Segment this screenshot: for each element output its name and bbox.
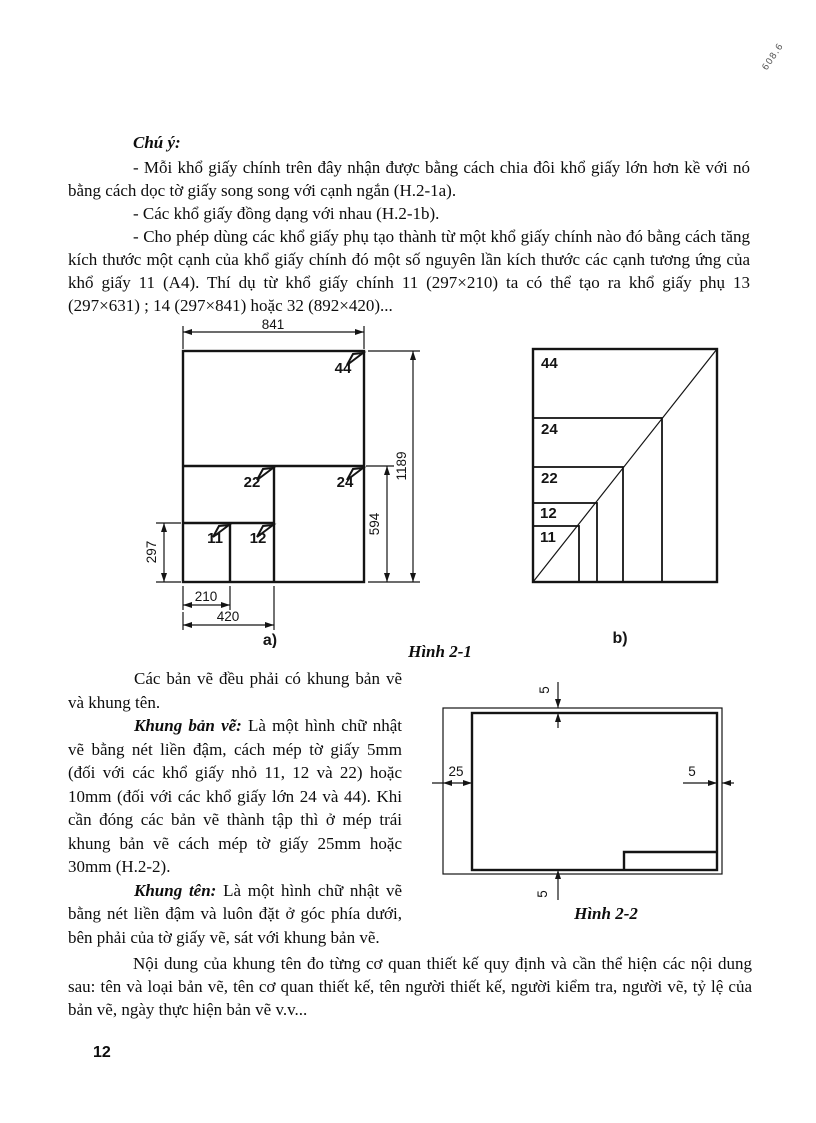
term-khung-ban-ve: Khung bản vẽ: bbox=[134, 716, 242, 735]
figure-2-2-caption: Hình 2-2 bbox=[558, 904, 654, 924]
paragraph: Khung tên: Là một hình chữ nhật vẽ bằng … bbox=[68, 879, 402, 950]
dimension-top-5: 5 bbox=[537, 682, 561, 728]
note-item: - Cho phép dùng các khổ giấy phụ tạo thà… bbox=[68, 225, 750, 317]
dimension-210: 210 bbox=[183, 586, 230, 610]
format-label-12: 12 bbox=[540, 505, 557, 522]
title-block-outline bbox=[624, 852, 717, 870]
figure-2-2-diagram: 5 25 5 5 bbox=[432, 682, 734, 900]
dimension-841: 841 bbox=[183, 317, 364, 349]
format-label-22: 22 bbox=[541, 470, 558, 487]
dimension-right-5: 5 bbox=[683, 764, 734, 786]
format-label-44: 44 bbox=[335, 360, 352, 377]
document-page: 608.6 Chú ý: - Mỗi khổ giấy chính trên đ… bbox=[0, 0, 816, 1123]
dim-right-5-label: 5 bbox=[688, 764, 696, 779]
dim-297-label: 297 bbox=[144, 541, 159, 564]
dim-420-label: 420 bbox=[217, 609, 240, 624]
dim-bottom-5-label: 5 bbox=[535, 890, 550, 898]
figure-2-1b-diagram: 44 24 22 12 11 b) bbox=[533, 349, 717, 647]
paragraph: Nội dung của khung tên đo từng cơ quan t… bbox=[68, 952, 752, 1021]
dim-594-label: 594 bbox=[367, 512, 382, 535]
notes-heading: Chú ý: bbox=[68, 131, 750, 154]
dim-210-label: 210 bbox=[195, 589, 218, 604]
format-label-11: 11 bbox=[207, 530, 223, 547]
figure-2-1a-diagram: 44 22 24 11 12 841 1189 bbox=[144, 317, 420, 648]
figure-2-1: 44 22 24 11 12 841 1189 bbox=[80, 316, 780, 648]
format-label-11: 11 bbox=[540, 529, 556, 546]
format-label-12: 12 bbox=[250, 530, 267, 547]
paragraph-text: Là một hình chữ nhật vẽ bằng nét liền đậ… bbox=[68, 881, 402, 947]
format-label-44: 44 bbox=[541, 355, 558, 372]
note-item: - Mỗi khổ giấy chính trên đây nhận được … bbox=[68, 156, 750, 202]
dim-841-label: 841 bbox=[262, 317, 285, 332]
term-khung-ten: Khung tên: bbox=[134, 881, 216, 900]
paper-edge-outline bbox=[443, 708, 722, 874]
drawing-frame-outline bbox=[472, 713, 717, 870]
closing-section: Nội dung của khung tên đo từng cơ quan t… bbox=[68, 952, 752, 1021]
dimension-297: 297 bbox=[144, 523, 181, 582]
format-label-22: 22 bbox=[244, 474, 261, 491]
dimension-594: 594 bbox=[366, 466, 394, 582]
dimension-left-25: 25 bbox=[432, 764, 472, 786]
paragraph-text: Là một hình chữ nhật vẽ bằng nét liền đậ… bbox=[68, 716, 402, 876]
note-item: - Các khổ giấy đồng dạng với nhau (H.2-1… bbox=[68, 202, 750, 225]
dim-left-25-label: 25 bbox=[448, 764, 463, 779]
body-text-column: Các bản vẽ đều phải có khung bản vẽ và k… bbox=[68, 667, 402, 949]
format-label-24: 24 bbox=[337, 474, 354, 491]
paragraph: Khung bản vẽ: Là một hình chữ nhật vẽ bằ… bbox=[68, 714, 402, 879]
dim-top-5-label: 5 bbox=[537, 686, 552, 694]
sub-figure-a-label: a) bbox=[263, 632, 277, 648]
page-number: 12 bbox=[93, 1044, 111, 1062]
diagonal-line bbox=[533, 349, 717, 582]
figure-2-2: 5 25 5 5 bbox=[430, 672, 750, 907]
figure-2-1-caption: Hình 2-1 bbox=[398, 642, 482, 662]
paragraph: Các bản vẽ đều phải có khung bản vẽ và k… bbox=[68, 667, 402, 714]
notes-section: Chú ý: - Mỗi khổ giấy chính trên đây nhậ… bbox=[68, 131, 750, 317]
sub-figure-b-label: b) bbox=[612, 630, 627, 647]
format-label-24: 24 bbox=[541, 421, 558, 438]
dim-1189-label: 1189 bbox=[394, 451, 409, 480]
library-stamp: 608.6 bbox=[761, 41, 786, 72]
